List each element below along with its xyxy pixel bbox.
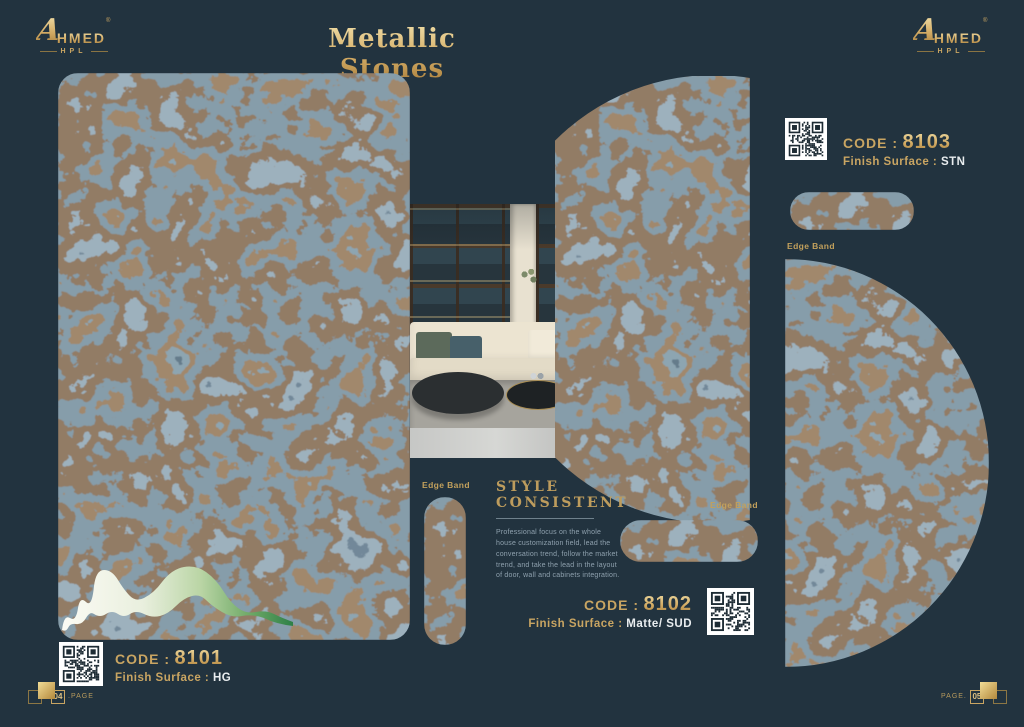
brand-initial: A [34, 16, 61, 46]
stone-panel-8101 [58, 73, 410, 640]
brand-name: HMED [57, 31, 106, 46]
square-gold-icon [38, 682, 55, 699]
qr-code-8101 [61, 644, 101, 684]
brand-initial: A [911, 16, 938, 46]
style-heading-line2: CONSISTENT [496, 495, 622, 511]
brand-logo-left: AHMED® HPL [26, 16, 121, 55]
page-label-left: .PAGE [68, 693, 94, 700]
finish-label: Finish Surface : [528, 618, 622, 630]
edge-band-label: Edge Band [787, 241, 835, 251]
edge-band-strip-8103 [790, 192, 914, 230]
square-gold-icon [980, 682, 997, 699]
finish-label: Finish Surface : [843, 156, 937, 168]
divider-rule [496, 518, 594, 519]
page-indicator-right: PAGE. 05 [938, 688, 1007, 705]
product-8102: CODE : 8102 Finish Surface : Matte/ SUD [510, 592, 692, 631]
brand-sub: HPL [61, 48, 87, 55]
finish-value: STN [941, 156, 966, 168]
style-heading-line1: STYLE [496, 479, 622, 495]
product-8101: CODE : 8101 Finish Surface : HG [115, 646, 231, 685]
code-value: 8102 [644, 593, 693, 615]
style-consistent-block: STYLE CONSISTENT Professional focus on t… [496, 479, 622, 582]
page-indicator-left: 04 .PAGE [28, 688, 97, 705]
edge-band-label: Edge Band [668, 500, 758, 510]
brand-name: HMED [934, 31, 983, 46]
registered-mark: ® [983, 18, 987, 24]
qr-code-8103 [787, 120, 825, 158]
logo-dash-icon [91, 51, 108, 52]
catalog-page: AHMED® HPL Metallic Stones AHMED® HPL [0, 0, 1024, 727]
code-value: 8103 [902, 131, 951, 153]
page-label-right: PAGE. [941, 693, 967, 700]
finish-value: HG [213, 672, 231, 684]
code-label: CODE : [843, 135, 898, 151]
logo-dash-icon [40, 51, 57, 52]
brand-sub: HPL [938, 48, 964, 55]
logo-dash-icon [917, 51, 934, 52]
finish-value: Matte/ SUD [626, 618, 692, 630]
code-value: 8101 [174, 647, 223, 669]
product-8103: CODE : 8103 Finish Surface : STN [843, 130, 965, 169]
registered-mark: ® [106, 18, 110, 24]
style-paragraph: Professional focus on the whole house cu… [496, 528, 622, 582]
edge-band-label: Edge Band [422, 480, 470, 490]
code-label: CODE : [584, 597, 639, 613]
wave-graphic [56, 556, 298, 634]
logo-dash-icon [968, 51, 985, 52]
qr-code-8102 [709, 590, 752, 633]
edge-band-strip-8102 [620, 520, 758, 562]
edge-band-strip-vertical [424, 497, 466, 645]
finish-label: Finish Surface : [115, 672, 209, 684]
code-label: CODE : [115, 651, 170, 667]
brand-logo-right: AHMED® HPL [903, 16, 998, 55]
